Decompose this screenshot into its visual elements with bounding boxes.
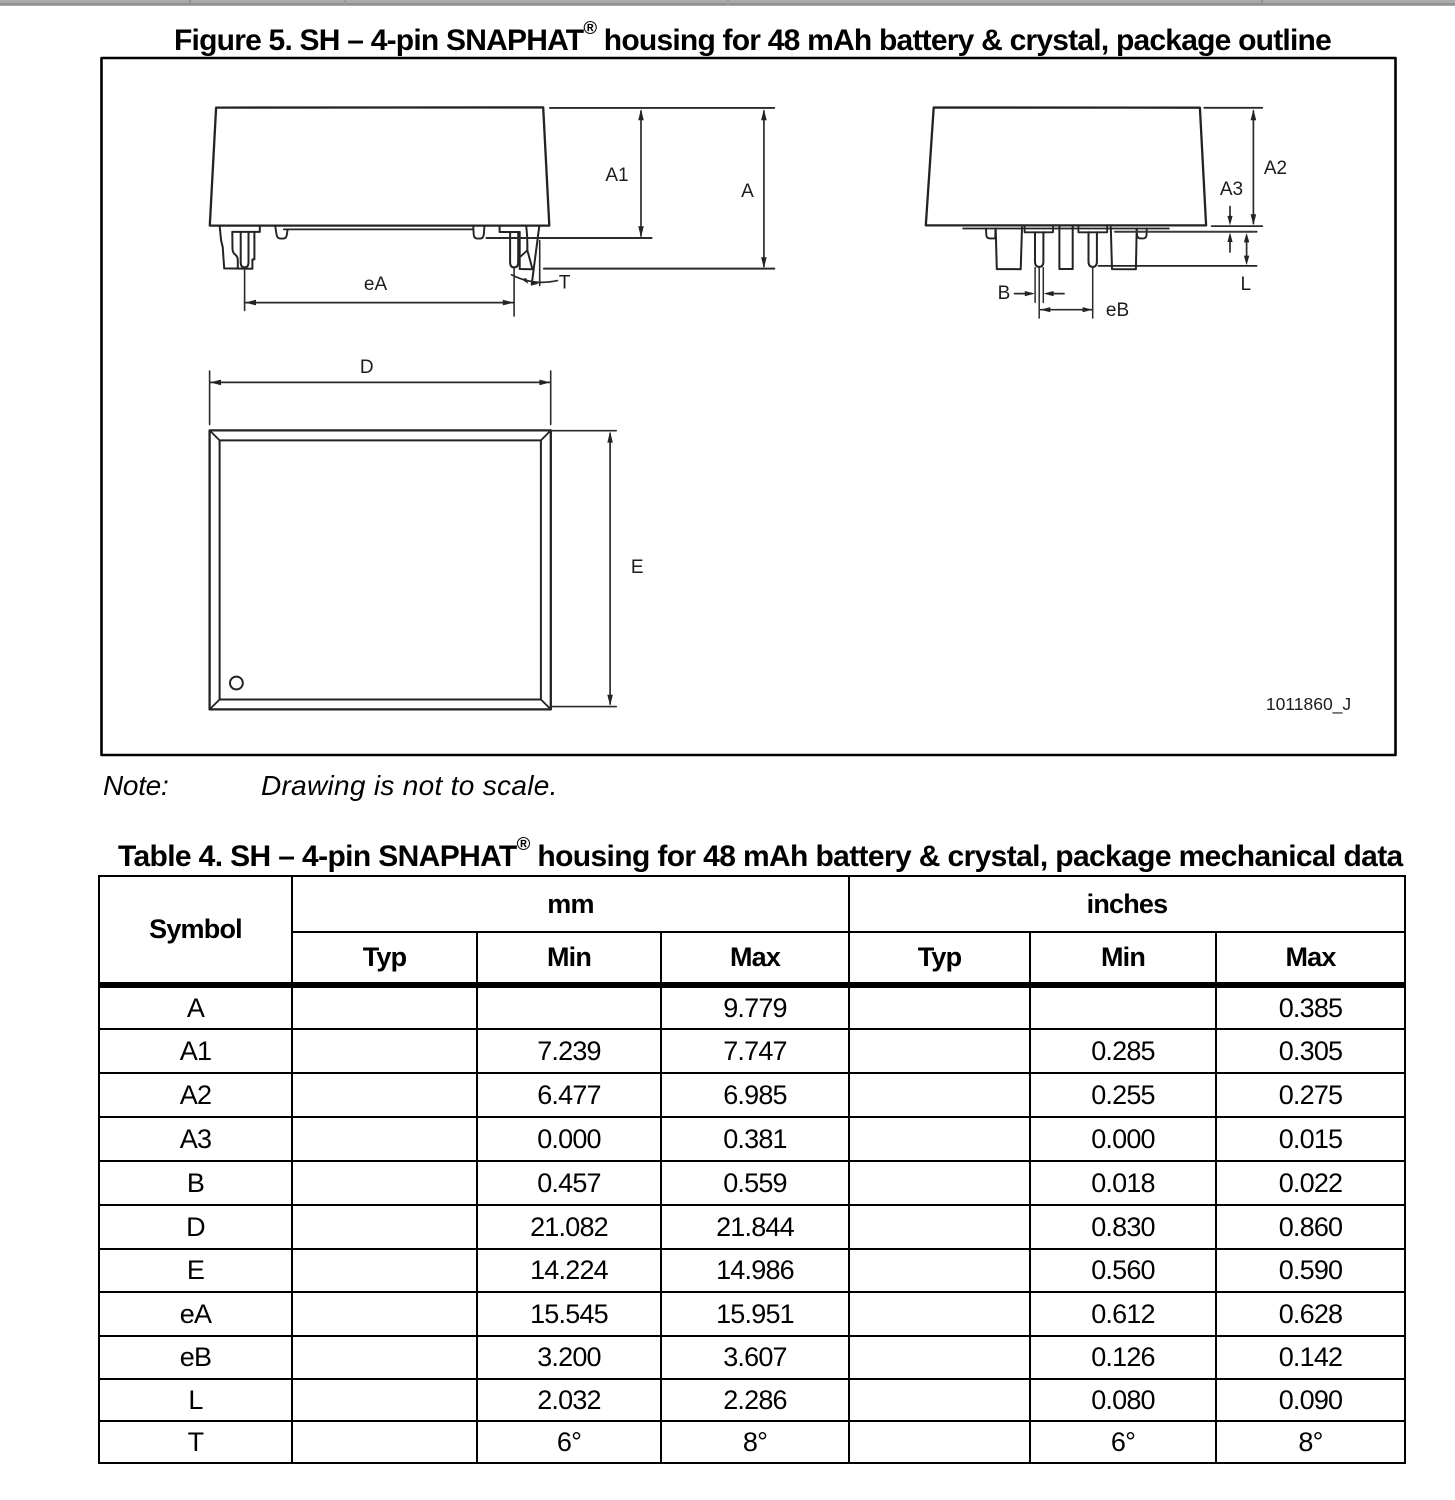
- svg-text:A: A: [741, 181, 754, 202]
- svg-text:B: B: [998, 283, 1011, 304]
- svg-text:L: L: [1241, 274, 1252, 295]
- svg-text:A3: A3: [1220, 179, 1243, 200]
- svg-text:A1: A1: [605, 165, 628, 186]
- svg-text:eA: eA: [364, 274, 388, 295]
- svg-text:A2: A2: [1264, 158, 1287, 179]
- svg-text:T: T: [559, 273, 571, 294]
- svg-text:D: D: [360, 357, 374, 378]
- svg-text:eB: eB: [1106, 300, 1129, 321]
- svg-text:E: E: [631, 557, 644, 578]
- svg-text:1011860_J: 1011860_J: [1266, 694, 1351, 715]
